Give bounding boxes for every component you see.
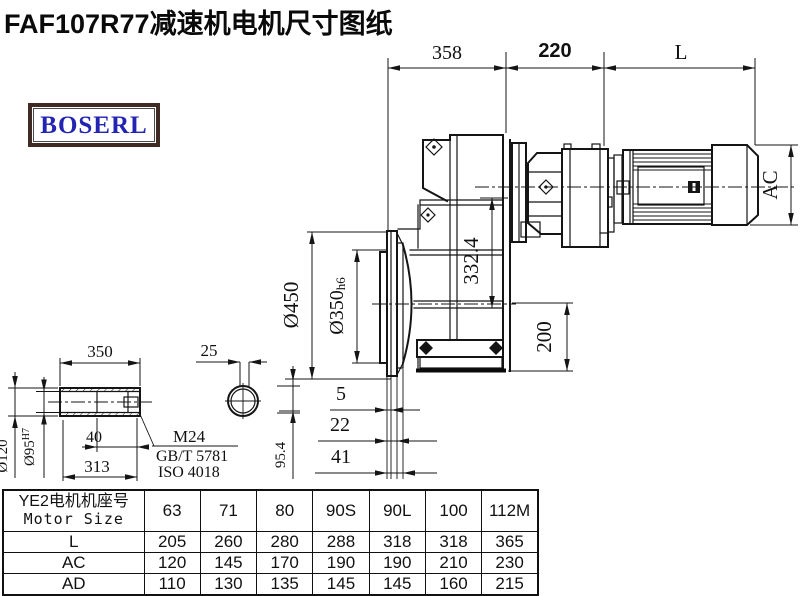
cell: 145 xyxy=(313,573,369,595)
cell: 215 xyxy=(482,573,538,595)
dim-200-label: 200 xyxy=(532,321,556,353)
breather-plug-icon xyxy=(426,139,442,155)
cell: 135 xyxy=(257,573,313,595)
cell: 145 xyxy=(200,552,256,573)
hollow-shaft-view xyxy=(48,388,238,446)
header-en: Motor Size xyxy=(4,511,144,528)
dim-954-label: 95.4 xyxy=(273,441,289,468)
gear-case xyxy=(398,135,510,371)
cell: 190 xyxy=(313,552,369,573)
table-row-AD: AD 110 130 135 145 145 160 215 xyxy=(3,573,538,595)
col-90L: 90L xyxy=(369,490,425,531)
col-100: 100 xyxy=(425,490,481,531)
thread-iso-label: ISO 4018 xyxy=(158,464,220,481)
dim-120-label: Ø120 xyxy=(0,439,11,472)
dim-5-label: 5 xyxy=(336,383,346,405)
cell: 288 xyxy=(313,531,369,552)
header-cn: YE2电机机座号 xyxy=(4,493,144,511)
cell: 318 xyxy=(369,531,425,552)
col-71: 71 xyxy=(200,490,256,531)
table-header-row: YE2电机机座号 Motor Size 63 71 80 90S 90L 100… xyxy=(3,490,538,531)
thread-callout: M24 GB/T 5781 ISO 4018 xyxy=(156,427,228,481)
col-112M: 112M xyxy=(482,490,538,531)
cell: 120 xyxy=(144,552,200,573)
cell: 280 xyxy=(257,531,313,552)
side-plug-icon xyxy=(421,208,435,222)
motor xyxy=(372,145,796,304)
cell: 318 xyxy=(425,531,481,552)
col-80: 80 xyxy=(257,490,313,531)
cell: 210 xyxy=(425,552,481,573)
dim-22: 22 xyxy=(318,414,437,441)
cell: 205 xyxy=(144,531,200,552)
table-row-AC: AC 120 145 170 190 190 210 230 xyxy=(3,552,538,573)
dim-220-label: 220 xyxy=(538,40,571,62)
col-63: 63 xyxy=(144,490,200,531)
drawing-sheet: FAF107R77减速机电机尺寸图纸 BOSERL xyxy=(0,0,800,596)
dim-3324: 332.4 xyxy=(459,198,508,308)
dim-40-label: 40 xyxy=(86,429,102,446)
dim-41-label: 41 xyxy=(331,446,351,468)
dim-350len: 350 xyxy=(60,342,140,386)
dim-350h6: Ø350h6 xyxy=(326,250,387,363)
dim-200: 200 xyxy=(508,303,573,371)
cell: 260 xyxy=(200,531,256,552)
dim-954-ext xyxy=(277,386,300,413)
dim-350len-label: 350 xyxy=(87,342,113,361)
thread-gb-label: GB/T 5781 xyxy=(156,448,228,465)
dim-41: 41 xyxy=(315,446,437,473)
output-flange xyxy=(380,231,412,479)
dim-358-label: 358 xyxy=(432,42,462,64)
dim-25: 25 xyxy=(196,341,267,386)
mounting-foot xyxy=(416,340,506,371)
row-label-AD: AD xyxy=(3,573,144,595)
cell: 130 xyxy=(200,573,256,595)
dim-AC-label: AC xyxy=(758,170,782,199)
cell: 230 xyxy=(482,552,538,573)
dim-22-label: 22 xyxy=(330,414,350,436)
header-motor-size: YE2电机机座号 Motor Size xyxy=(3,490,144,531)
dim-5: 5 xyxy=(330,383,420,410)
cell: 170 xyxy=(257,552,313,573)
cell: 160 xyxy=(425,573,481,595)
input-housing xyxy=(512,143,629,247)
cell: 110 xyxy=(144,573,200,595)
row-label-L: L xyxy=(3,531,144,552)
dim-95h7: Ø95H7 xyxy=(21,377,62,478)
dim-954: 95.4 xyxy=(273,366,300,479)
dim-313-label: 313 xyxy=(84,457,110,476)
dim-3324-label: 332.4 xyxy=(459,237,483,285)
cell: 365 xyxy=(482,531,538,552)
thread-m24-label: M24 xyxy=(173,427,206,446)
shaft-section-view xyxy=(225,383,261,419)
table-row-L: L 205 260 280 288 318 318 365 xyxy=(3,531,538,552)
motor-size-table: YE2电机机座号 Motor Size 63 71 80 90S 90L 100… xyxy=(2,489,539,596)
fan-cowl xyxy=(712,145,758,225)
row-label-AC: AC xyxy=(3,552,144,573)
cell: 145 xyxy=(369,573,425,595)
dim-350h6-label: Ø350h6 xyxy=(326,277,348,335)
dim-L: L xyxy=(604,40,755,145)
dim-25-label: 25 xyxy=(201,341,218,360)
dim-L-label: L xyxy=(675,40,688,64)
dim-220: 220 xyxy=(506,40,604,146)
cell: 190 xyxy=(369,552,425,573)
col-90S: 90S xyxy=(313,490,369,531)
dim-95h7-label: Ø95H7 xyxy=(21,428,38,466)
dim-450-label: Ø450 xyxy=(279,282,303,329)
